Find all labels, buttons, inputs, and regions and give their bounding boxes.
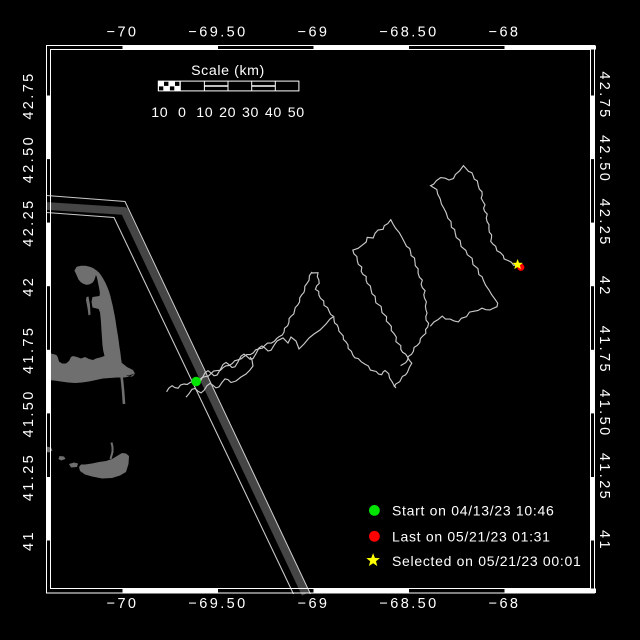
svg-text:41.50: 41.50 (21, 389, 37, 437)
svg-text:−68.50: −68.50 (379, 596, 438, 612)
svg-text:Start on 04/13/23 10:46: Start on 04/13/23 10:46 (392, 503, 554, 519)
svg-text:−68: −68 (489, 596, 521, 612)
svg-text:10: 10 (151, 105, 168, 121)
svg-text:42: 42 (21, 276, 37, 297)
svg-text:−69.50: −69.50 (188, 25, 247, 41)
svg-text:41.25: 41.25 (596, 453, 612, 501)
svg-text:40: 40 (265, 105, 282, 121)
svg-text:Last on 05/21/23 01:31: Last on 05/21/23 01:31 (392, 529, 551, 545)
svg-text:42.75: 42.75 (21, 71, 37, 119)
svg-text:42.50: 42.50 (21, 135, 37, 183)
svg-text:42: 42 (596, 276, 612, 297)
svg-text:41.25: 41.25 (21, 453, 37, 501)
svg-text:41.75: 41.75 (21, 326, 37, 374)
svg-text:42.25: 42.25 (21, 198, 37, 246)
svg-text:10: 10 (196, 105, 213, 121)
svg-text:−69: −69 (298, 596, 330, 612)
svg-text:Selected on 05/21/23 00:01: Selected on 05/21/23 00:01 (392, 553, 581, 569)
svg-text:−68.50: −68.50 (379, 25, 438, 41)
svg-text:−68: −68 (489, 25, 521, 41)
svg-text:42.50: 42.50 (596, 135, 612, 183)
svg-text:50: 50 (288, 105, 305, 121)
svg-text:−69: −69 (298, 25, 330, 41)
svg-text:−70: −70 (107, 25, 139, 41)
svg-text:41.75: 41.75 (596, 326, 612, 374)
svg-text:−69.50: −69.50 (188, 596, 247, 612)
svg-text:41.50: 41.50 (596, 389, 612, 437)
svg-text:0: 0 (178, 105, 187, 121)
svg-text:42.75: 42.75 (596, 71, 612, 119)
svg-text:41: 41 (596, 530, 612, 551)
svg-text:−70: −70 (107, 596, 139, 612)
svg-text:41: 41 (21, 530, 37, 551)
svg-text:42.25: 42.25 (596, 198, 612, 246)
svg-text:30: 30 (242, 105, 259, 121)
svg-text:20: 20 (219, 105, 236, 121)
svg-text:Scale (km): Scale (km) (191, 63, 265, 79)
